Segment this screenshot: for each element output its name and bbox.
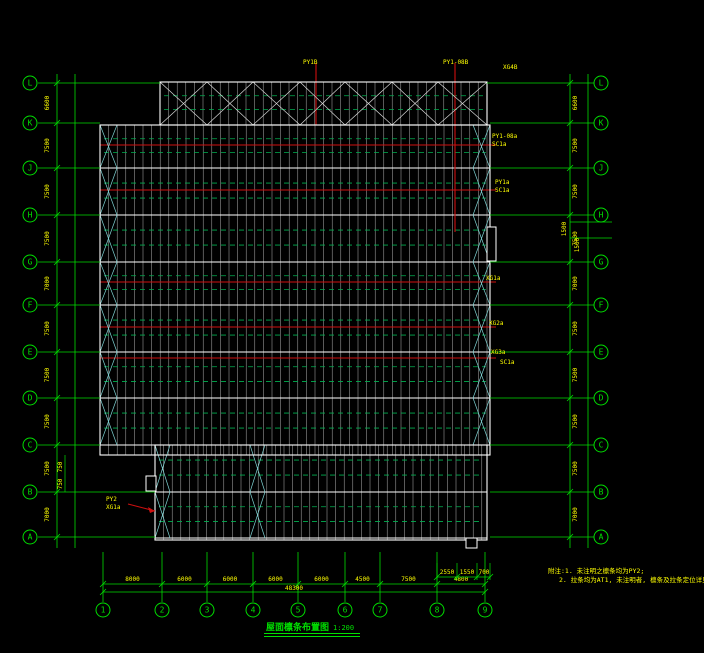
grid-number-bottom: 9 <box>483 606 488 615</box>
dim-left: 7500 <box>44 461 51 476</box>
dim-bottom: 8000 <box>125 576 140 583</box>
grid-letter-right: L <box>599 79 604 88</box>
grid-letter-left: L <box>28 79 33 88</box>
dim-left: 7500 <box>44 321 51 336</box>
shape <box>125 0 380 82</box>
member-label-1-line2: SC1a <box>492 141 517 149</box>
grid-letter-left: K <box>28 119 33 128</box>
drawing-notes: 附注:1. 未注明之檩条均为PY2; 2. 拉条均为AT1, 未注明者, 檩条及… <box>548 567 704 584</box>
dim-left: 7000 <box>44 507 51 522</box>
dim-bottom: 6000 <box>177 576 192 583</box>
dim-bottom-total: 48300 <box>285 585 303 592</box>
shape <box>162 0 540 445</box>
member-label-4: XG2a <box>489 320 503 327</box>
dim-right: 7000 <box>572 507 579 522</box>
grid-number-bottom: 4 <box>251 606 256 615</box>
dim-left: 7500 <box>44 367 51 382</box>
shape <box>253 0 540 445</box>
member-label-2-line1: PY1a <box>495 179 509 187</box>
detail-tab <box>146 476 156 491</box>
dim-right: 7000 <box>572 276 579 291</box>
detail-tab <box>466 538 477 548</box>
grid-letter-right: H <box>599 211 604 220</box>
shape <box>125 0 253 82</box>
grid-letter-left: D <box>28 394 33 403</box>
grid-letter-right: J <box>599 164 604 173</box>
dim-left-sub: 750 <box>57 478 64 489</box>
member-label-3: XG1a <box>486 275 500 282</box>
dim-left: 7000 <box>44 276 51 291</box>
shape <box>125 0 345 82</box>
shape <box>125 0 437 82</box>
grid-letter-right: B <box>599 488 604 497</box>
dim-left-sub: 750 <box>57 461 64 472</box>
grid-letter-right: F <box>599 301 604 310</box>
dim-bottom: 6000 <box>268 576 283 583</box>
grid-letter-left: B <box>28 488 33 497</box>
structure-outline <box>100 125 490 455</box>
grid-number-bottom: 5 <box>296 606 301 615</box>
grid-number-bottom: 3 <box>205 606 210 615</box>
member-label-bottom-left: PY2 XG1a <box>106 496 120 511</box>
dim-bottom-sub: 700 <box>479 569 490 576</box>
grid-letter-left: C <box>28 441 33 450</box>
grid-letter-right: D <box>599 394 604 403</box>
dim-left: 7500 <box>44 138 51 153</box>
dim-right: 7500 <box>572 138 579 153</box>
grid-letter-left: A <box>28 533 33 542</box>
grid-letter-left: F <box>28 301 33 310</box>
dim-bottom: 4500 <box>355 576 370 583</box>
dim-left: 7500 <box>44 414 51 429</box>
member-label-bl-line2: XG1a <box>106 504 120 512</box>
grid-number-bottom: 8 <box>435 606 440 615</box>
title-underline <box>264 633 360 634</box>
grid-letter-right: C <box>599 441 604 450</box>
grid-number-bottom: 7 <box>378 606 383 615</box>
shape <box>125 0 207 82</box>
title-underline-2 <box>264 636 360 637</box>
member-label-5b: SC1a <box>500 359 514 366</box>
shape <box>125 0 162 82</box>
dim-bottom-sub: 2550 <box>440 569 455 576</box>
dim-right: 7500 <box>572 414 579 429</box>
shape <box>253 0 455 125</box>
grid-number-bottom: 6 <box>343 606 348 615</box>
dim-left: 7500 <box>44 231 51 246</box>
dim-right-sub: 1500 <box>574 237 581 252</box>
dim-bottom: 7500 <box>401 576 416 583</box>
dim-left: 7500 <box>44 184 51 199</box>
grid-number-bottom: 1 <box>101 606 106 615</box>
tie-rod-label-top: XG4B <box>503 64 517 71</box>
grid-number-bottom: 2 <box>160 606 165 615</box>
grid-letter-right: G <box>599 258 604 267</box>
dim-bottom: 6000 <box>314 576 329 583</box>
roof-purlin-plan-drawing[interactable]: LKJHGFEDCBALKJHGFEDCBA660075007500750070… <box>0 0 704 653</box>
member-label-1-line1: PY1-08a <box>492 133 517 141</box>
grid-letter-right: A <box>599 533 604 542</box>
member-label-2-line2: SC1a <box>495 187 509 195</box>
member-label-5: XG3a <box>491 349 505 356</box>
dim-right: 7500 <box>572 461 579 476</box>
purlin-label-top-right: PY1-08B <box>443 59 468 66</box>
drawing-title-text: 屋面檩条布置图 <box>266 623 329 633</box>
leader-arrowhead <box>148 507 155 513</box>
shape <box>298 0 455 125</box>
shape <box>125 0 298 82</box>
grid-letter-left: G <box>28 258 33 267</box>
grid-letter-left: E <box>28 348 33 357</box>
dim-right-sub: 1500 <box>561 221 568 236</box>
member-label-2: PY1a SC1a <box>495 179 509 194</box>
grid-letter-right: E <box>599 348 604 357</box>
detail-tab <box>487 227 496 261</box>
member-label-1: PY1-08a SC1a <box>492 133 517 148</box>
purlin-label-top-left: PY1B <box>303 59 317 66</box>
dim-right: 7500 <box>572 367 579 382</box>
dim-right: 6600 <box>572 95 579 110</box>
grid-letter-right: K <box>599 119 604 128</box>
dim-bottom: 6000 <box>223 576 238 583</box>
grid-letter-left: H <box>28 211 33 220</box>
shape <box>345 0 455 125</box>
dim-right: 7500 <box>572 184 579 199</box>
note-line-1: 附注:1. 未注明之檩条均为PY2; <box>548 567 704 576</box>
note-line-2: 2. 拉条均为AT1, 未注明者, 檩条及拉条定位详见檩条大样图。 <box>559 576 704 585</box>
member-label-bl-line1: PY2 <box>106 496 120 504</box>
drawing-scale: 1:200 <box>333 624 354 632</box>
drawing-title: 屋面檩条布置图1:200 <box>266 620 354 633</box>
dim-left: 6600 <box>44 95 51 110</box>
dim-bottom-sub: 1550 <box>460 569 475 576</box>
grid-letter-left: J <box>28 164 33 173</box>
shape <box>125 0 485 82</box>
dim-right: 7500 <box>572 321 579 336</box>
cad-canvas[interactable]: LKJHGFEDCBALKJHGFEDCBA660075007500750070… <box>0 0 704 653</box>
